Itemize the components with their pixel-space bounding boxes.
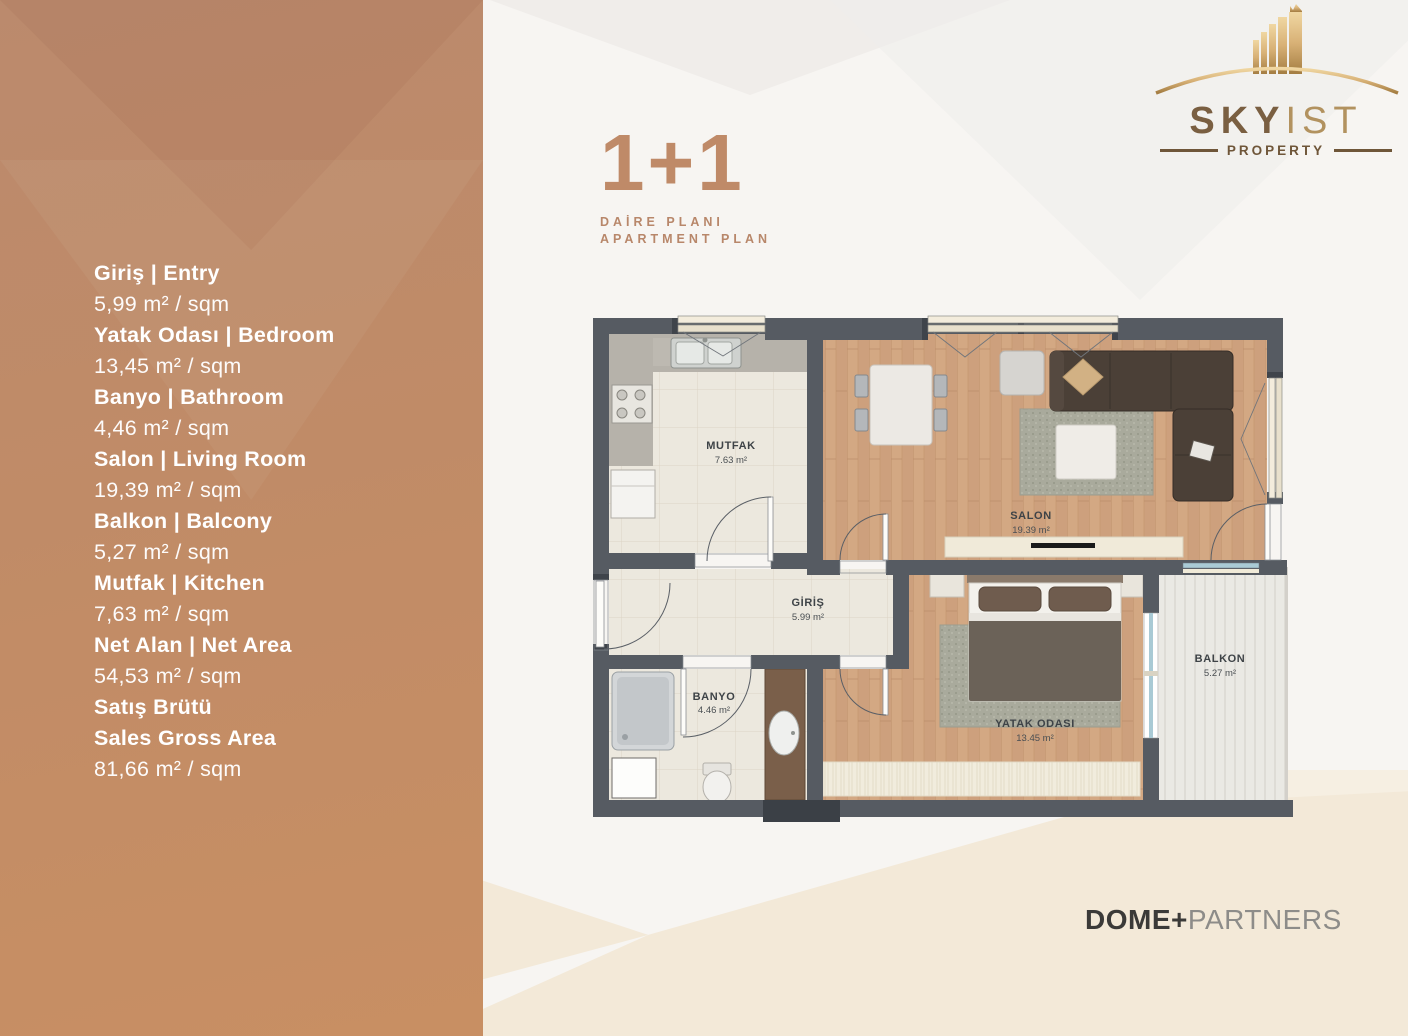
subtitle-turkish: DAİRE PLANI bbox=[600, 214, 771, 231]
living-room-window bbox=[928, 316, 1118, 323]
shower-drain bbox=[622, 734, 628, 740]
kitchen-door-leaf bbox=[768, 497, 773, 561]
room-label-kitchen: MUTFAK bbox=[706, 440, 755, 452]
balcony-door-leaf bbox=[1265, 504, 1270, 560]
wall-kitchen-hall bbox=[609, 553, 695, 569]
balcony-rail bbox=[1285, 567, 1288, 800]
room-spec-list: Giriş | Entry 5,99 m² / sqm Yatak Odası … bbox=[94, 258, 335, 785]
wall-top-block bbox=[1118, 318, 1283, 340]
spec-label: Salon | Living Room bbox=[94, 444, 335, 475]
stove-burner bbox=[617, 390, 627, 400]
dining-chair bbox=[934, 409, 947, 431]
living-room-window bbox=[928, 325, 1118, 332]
washing-machine bbox=[612, 758, 656, 798]
room-label-living: SALON bbox=[1010, 510, 1052, 522]
bathroom-door-leaf bbox=[681, 669, 686, 735]
kitchen-door-threshold bbox=[695, 554, 771, 567]
balcony-window-mullion bbox=[1144, 671, 1158, 676]
page-title: 1+1 bbox=[600, 124, 771, 202]
wall-hall-living bbox=[807, 560, 840, 575]
spec-value: 81,66 m² / sqm bbox=[94, 754, 335, 785]
spec-label: Sales Gross Area bbox=[94, 723, 335, 754]
wall-right bbox=[1267, 318, 1283, 378]
balcony-door-glass bbox=[1183, 563, 1259, 568]
kitchen-window bbox=[678, 325, 765, 332]
kitchen-window bbox=[678, 316, 765, 323]
stove bbox=[612, 385, 652, 423]
spec-value: 13,45 m² / sqm bbox=[94, 351, 335, 382]
logo-tagline: PROPERTY bbox=[1150, 143, 1402, 158]
bed-sheet-fold bbox=[969, 613, 1121, 621]
subtitle-english: APARTMENT PLAN bbox=[600, 231, 771, 248]
living-door-leaf bbox=[883, 514, 888, 560]
wall-living-bedroom bbox=[909, 560, 1143, 575]
bedroom-door-threshold bbox=[840, 656, 886, 668]
logo-text-ist: IST bbox=[1286, 100, 1363, 142]
spec-label: Banyo | Bathroom bbox=[94, 382, 335, 413]
room-label-entry: GİRİŞ bbox=[792, 596, 825, 609]
room-area-balcony: 5.27 m² bbox=[1204, 668, 1236, 679]
right-window bbox=[1276, 378, 1282, 498]
balcony-floor bbox=[1159, 567, 1287, 800]
refrigerator bbox=[611, 470, 655, 518]
skyist-building-icon bbox=[1150, 4, 1402, 96]
spec-value: 7,63 m² / sqm bbox=[94, 599, 335, 630]
armchair-pouf bbox=[1000, 351, 1044, 395]
spec-label: Yatak Odası | Bedroom bbox=[94, 320, 335, 351]
window-jamb bbox=[1267, 372, 1283, 378]
wall-kitchen-hall bbox=[771, 553, 807, 569]
wall-bedroom-balcony bbox=[1143, 738, 1159, 800]
dining-chair bbox=[934, 375, 947, 397]
right-window bbox=[1269, 378, 1275, 498]
bed-pillow bbox=[979, 587, 1041, 611]
room-area-bedroom: 13.45 m² bbox=[1016, 733, 1054, 744]
architect-brand: DOME+PARTNERS bbox=[1085, 904, 1342, 936]
tv bbox=[1031, 543, 1095, 548]
tagline-text: PROPERTY bbox=[1227, 143, 1325, 158]
wall-hall-right bbox=[893, 575, 909, 655]
wall-top-block bbox=[765, 318, 928, 340]
spec-sidebar: Giriş | Entry 5,99 m² / sqm Yatak Odası … bbox=[0, 0, 483, 1036]
bg-diamond-shape bbox=[490, 0, 1010, 95]
sink-basin bbox=[676, 342, 704, 364]
spec-value: 5,99 m² / sqm bbox=[94, 289, 335, 320]
spec-label: Satış Brütü bbox=[94, 692, 335, 723]
dining-table bbox=[870, 365, 932, 445]
logo-text-sky: SKY bbox=[1189, 100, 1285, 142]
entry-door-leaf bbox=[596, 581, 604, 647]
wall-hall-living bbox=[886, 560, 909, 575]
wall-hall-bedroom bbox=[886, 655, 909, 669]
spec-label: Giriş | Entry bbox=[94, 258, 335, 289]
dining-chair bbox=[855, 409, 868, 431]
skyist-logo: SKYIST PROPERTY bbox=[1150, 4, 1402, 158]
room-label-balcony: BALKON bbox=[1195, 653, 1246, 665]
room-label-bedroom: YATAK ODASI bbox=[995, 718, 1075, 730]
wardrobe-band bbox=[823, 762, 1140, 796]
brand-partners: PARTNERS bbox=[1188, 904, 1342, 935]
stove-burner bbox=[635, 408, 645, 418]
room-area-entry: 5.99 m² bbox=[792, 612, 824, 623]
bathroom-door-threshold bbox=[683, 656, 751, 668]
sink-faucet bbox=[791, 731, 795, 735]
tagline-rule-right bbox=[1334, 149, 1392, 152]
dining-chair bbox=[855, 375, 868, 397]
wall-bedroom-balcony bbox=[1143, 575, 1159, 613]
coffee-table bbox=[1056, 425, 1116, 479]
logo-wordmark: SKYIST bbox=[1150, 101, 1402, 141]
entry-floor bbox=[609, 569, 893, 655]
wall-left bbox=[593, 650, 609, 817]
sink-faucet bbox=[703, 338, 708, 343]
bedroom-door-leaf bbox=[883, 669, 888, 715]
room-area-bathroom: 4.46 m² bbox=[698, 705, 730, 716]
wall-bottom bbox=[593, 800, 1293, 817]
room-label-bathroom: BANYO bbox=[693, 691, 736, 703]
bed-blanket bbox=[969, 619, 1121, 701]
sofa-armrest bbox=[1050, 351, 1064, 411]
stove-burner bbox=[635, 390, 645, 400]
wall-hall-bathroom bbox=[609, 655, 683, 669]
spec-value: 5,27 m² / sqm bbox=[94, 537, 335, 568]
plan-title-block: 1+1 DAİRE PLANI APARTMENT PLAN bbox=[600, 124, 771, 248]
spec-label: Mutfak | Kitchen bbox=[94, 568, 335, 599]
brand-dome: DOME+ bbox=[1085, 904, 1188, 935]
spec-value: 4,46 m² / sqm bbox=[94, 413, 335, 444]
spec-label: Balkon | Balcony bbox=[94, 506, 335, 537]
spec-label: Net Alan | Net Area bbox=[94, 630, 335, 661]
wall-hall-bathroom bbox=[751, 655, 840, 669]
floor-plan: MUTFAK 7.63 m² SALON 19.39 m² GİRİŞ 5.99… bbox=[583, 313, 1293, 823]
wall-kitchen-living bbox=[807, 318, 823, 569]
stove-burner bbox=[617, 408, 627, 418]
wall-bottom-block bbox=[763, 800, 840, 822]
window-jamb bbox=[922, 318, 928, 340]
room-area-kitchen: 7.63 m² bbox=[715, 455, 747, 466]
tagline-rule-left bbox=[1160, 149, 1218, 152]
balcony-door-sill bbox=[1183, 569, 1259, 573]
bed-pillow bbox=[1049, 587, 1111, 611]
wall-left bbox=[593, 318, 609, 580]
spec-value: 54,53 m² / sqm bbox=[94, 661, 335, 692]
door-jamb bbox=[593, 574, 609, 580]
toilet bbox=[703, 771, 731, 803]
spec-value: 19,39 m² / sqm bbox=[94, 475, 335, 506]
wall-bathroom-bedroom bbox=[807, 669, 823, 800]
window-jamb bbox=[672, 318, 678, 334]
room-area-living: 19.39 m² bbox=[1012, 525, 1050, 536]
